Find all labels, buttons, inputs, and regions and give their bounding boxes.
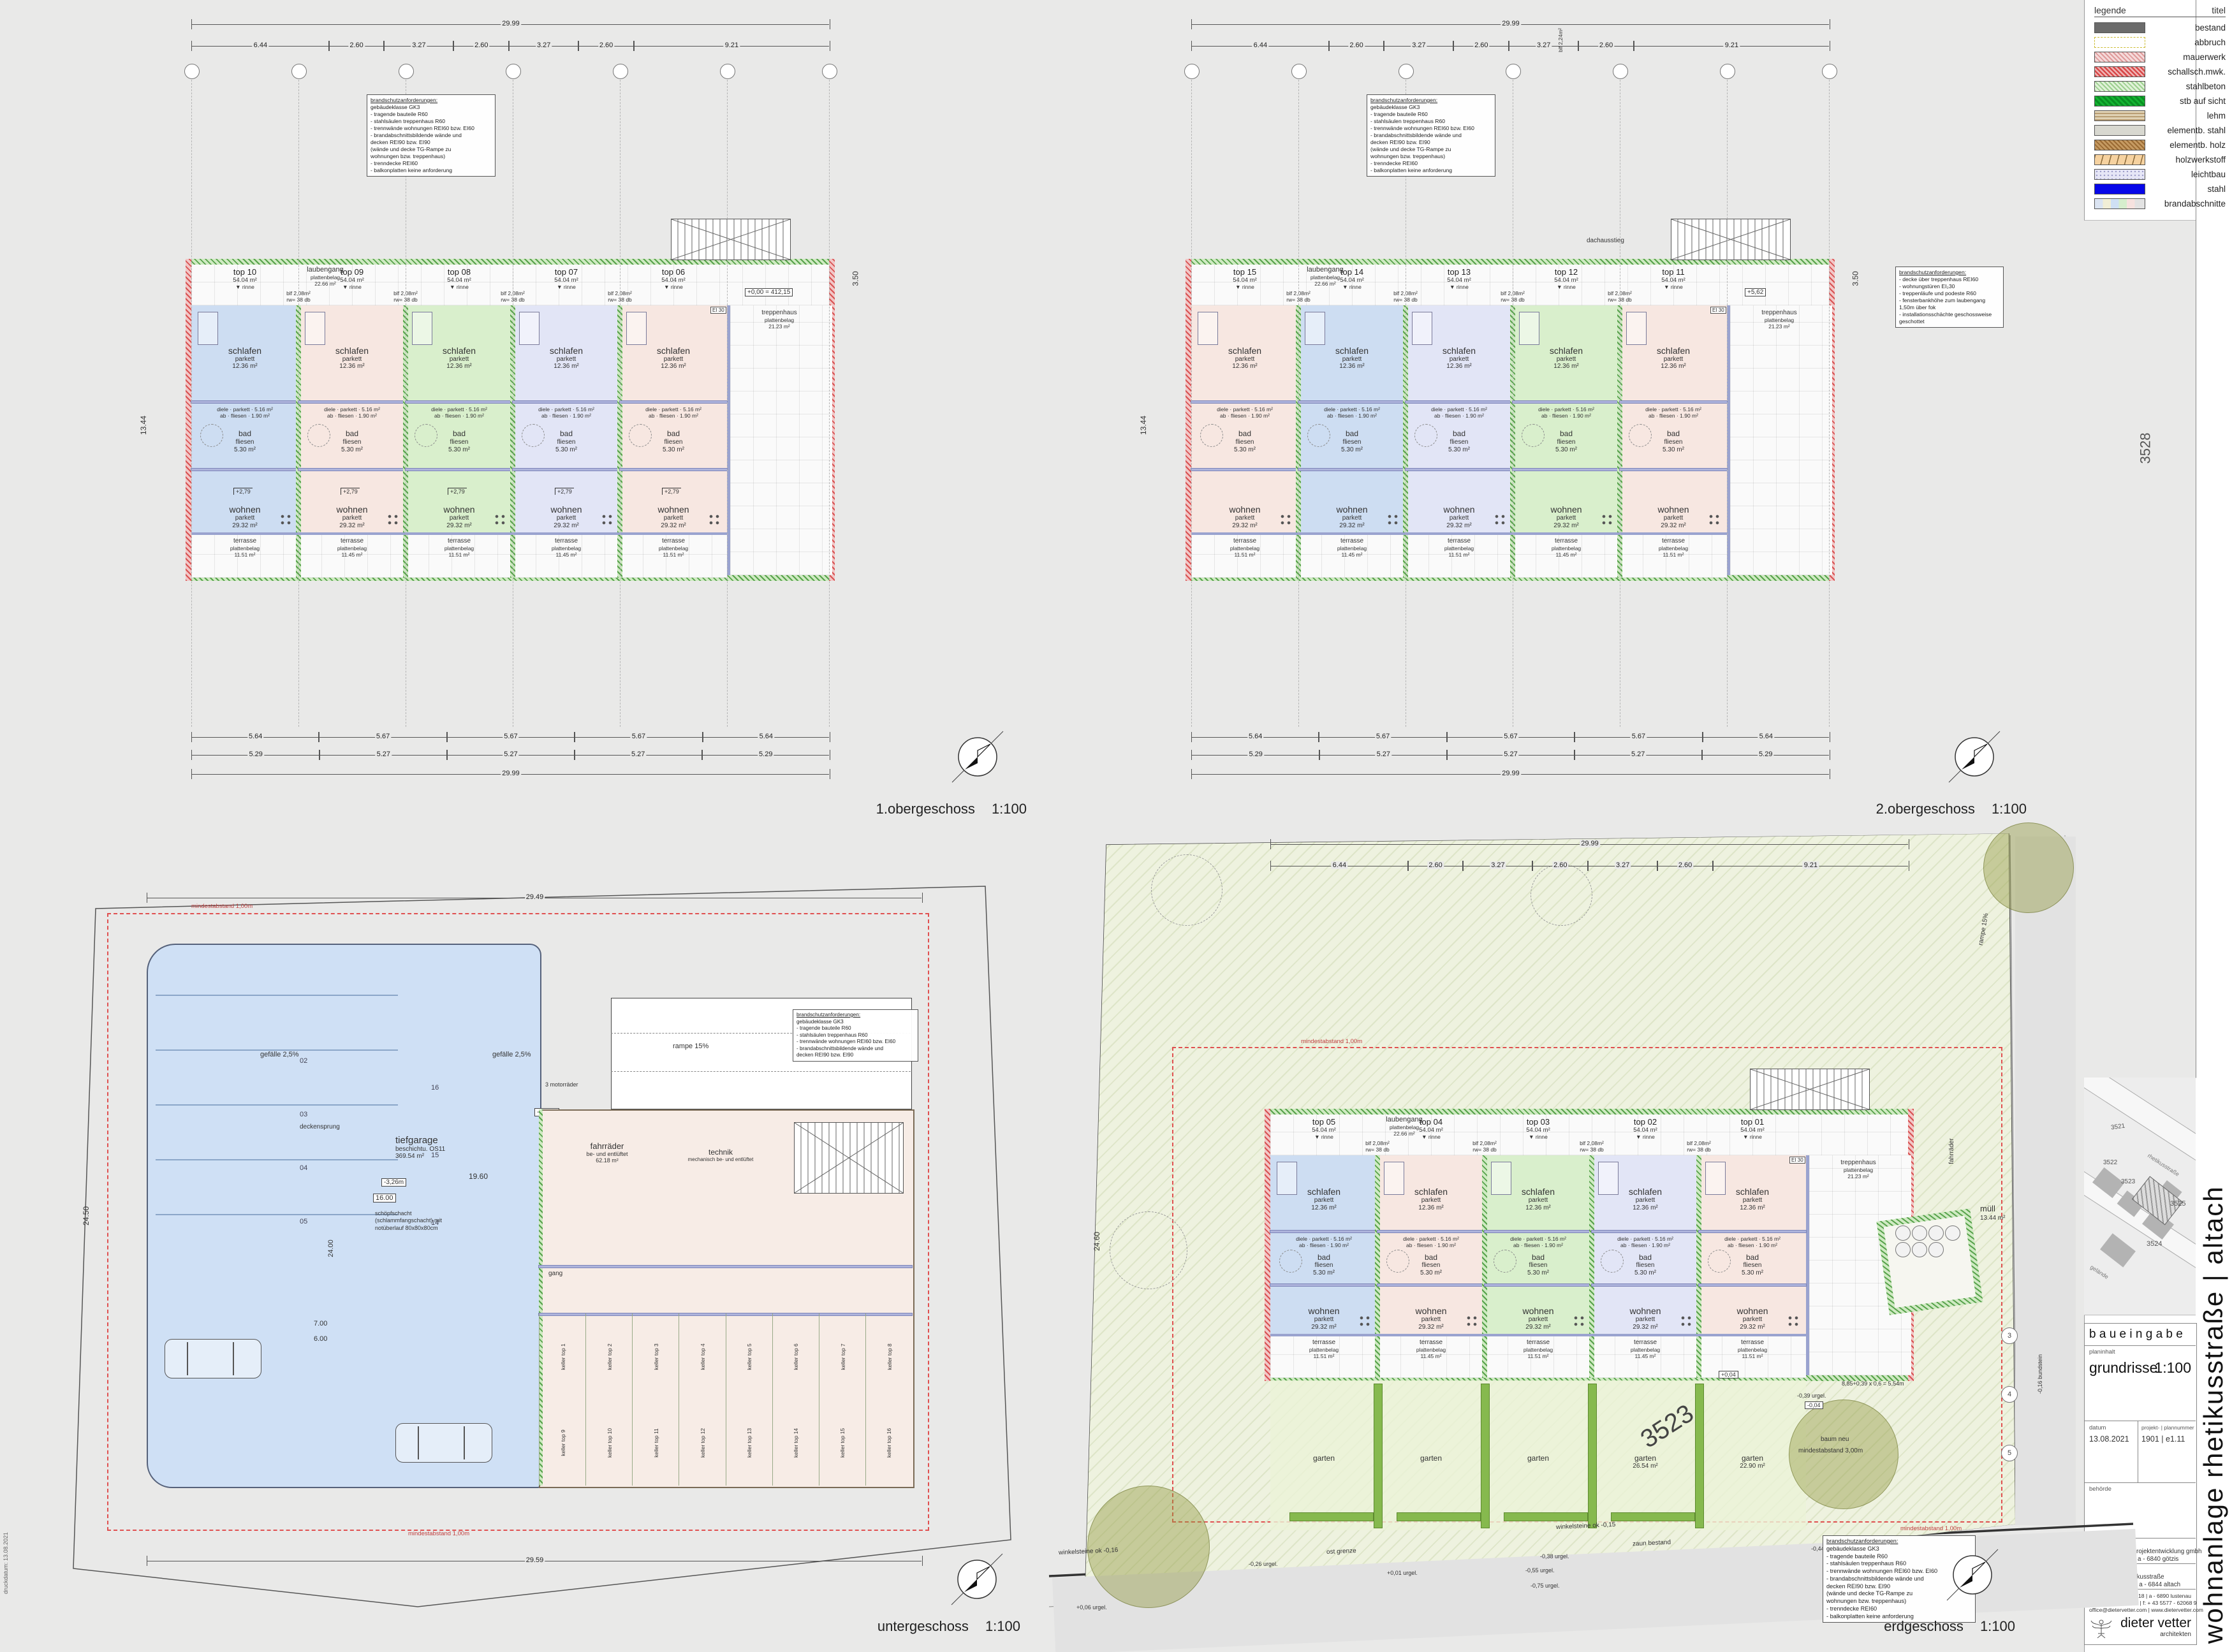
dimension-value: 5.27 (1630, 750, 1646, 758)
room-area: 12.36 m² (1620, 363, 1727, 370)
partition-line (1191, 469, 1298, 471)
room-diele-ab: diele · parkett · 5.16 m²ab · fliesen · … (1270, 1236, 1377, 1248)
room-name: schlafen (513, 346, 620, 356)
partition-line (298, 401, 406, 403)
grid-bubble (822, 64, 837, 79)
building-og2: top 1554.04 m²▼ rinnetop 1454.04 m²▼ rin… (1191, 265, 1829, 575)
kitchen-hob-icon (1573, 1315, 1585, 1327)
room-area: 12.36 m² (620, 363, 727, 370)
dim-7: 7.00 (314, 1320, 327, 1327)
walkway-strip: top 1054.04 m²▼ rinnetop 0954.04 m²▼ rin… (191, 265, 829, 308)
room-diele-ab: diele · parkett · 5.16 m²ab · fliesen · … (1513, 406, 1620, 419)
partition-line (1377, 1284, 1485, 1286)
window-note: blf 2,08m²rw= 38 db (1358, 1140, 1397, 1153)
partition-line (1377, 1231, 1485, 1232)
unit-area: 54.04 m² (1408, 277, 1510, 284)
cellar-cell-label: keller top 5 (746, 1343, 753, 1370)
partition-line (620, 469, 727, 471)
terrace-area: 11.51 m² (620, 552, 727, 558)
fire-note-line: gebäudeklasse GK3 (797, 1019, 914, 1026)
dimension-value: 5.27 (503, 750, 518, 758)
dimension-value: 5.29 (1758, 750, 1773, 758)
dimension-value: 2.60 (348, 41, 364, 49)
dimension-segment: 5.29 (191, 750, 320, 760)
terrace-name: terrasse (1191, 537, 1298, 545)
room-finish: parkett (1270, 1197, 1377, 1204)
terrace-area: 11.51 m² (406, 552, 513, 558)
floor-level: +2,79 (448, 488, 467, 495)
dimension-segment: 9.21 (633, 41, 830, 51)
room-diele-ab: diele · parkett · 5.16 m²ab · fliesen · … (513, 406, 620, 419)
terrace-finish: plattenbelag (1513, 545, 1620, 552)
fire-note-line: - balkonplatten keine anforderung (1370, 167, 1492, 174)
dim-16: 16.00 (373, 1194, 396, 1202)
terrace-label: terrasseplattenbelag11.51 m² (1191, 537, 1298, 558)
room-diele-ab: diele · parkett · 5.16 m²ab · fliesen · … (1191, 406, 1298, 419)
room-diele: diele · parkett · 5.16 m² (406, 406, 513, 413)
fire-note-line: - trenndecke REI60 (1370, 160, 1492, 167)
plan-title-row: untergeschoss1:100 (842, 1618, 1020, 1635)
unit-header: top 0554.04 m²▼ rinne (1273, 1117, 1375, 1140)
room-ab: ab · fliesen · 1.90 m² (1699, 1242, 1806, 1248)
unit-header: top 0254.04 m²▼ rinne (1594, 1117, 1696, 1140)
grid-bubble (613, 64, 628, 79)
room-diele: diele · parkett · 5.16 m² (1298, 406, 1406, 413)
rw-note: rw= 38 db (1573, 1146, 1611, 1153)
garden-label: garten (1270, 1454, 1377, 1463)
unit-stripe: schlafenparkett12.36 m²diele · parkett ·… (1513, 305, 1620, 532)
terrace-name: terrasse (1620, 537, 1727, 545)
grid-line (620, 80, 620, 727)
room-diele-ab: diele · parkett · 5.16 m²ab · fliesen · … (1485, 1236, 1592, 1248)
room-area: 5.30 m² (406, 446, 513, 454)
cellar-cell-label: keller top 11 (653, 1428, 659, 1458)
unit-id: top 01 (1701, 1117, 1803, 1127)
room-finish: parkett (1377, 1197, 1485, 1204)
bath-icon (1708, 1250, 1731, 1273)
dimension-value: 5.67 (375, 733, 391, 740)
dimension-segment: 29.99 (191, 19, 830, 29)
partition-line (1699, 1231, 1806, 1232)
stair-door-tag: EI 30 (1789, 1157, 1805, 1164)
plan-title-row: erdgeschoss1:100 (1837, 1618, 2015, 1635)
terrace-cell: terrasseplattenbelag11.45 m² (1298, 532, 1406, 578)
party-wall-left (186, 259, 191, 581)
bed-icon (1277, 1162, 1297, 1195)
unit-area: 54.04 m² (1273, 1127, 1375, 1134)
unit-id: top 13 (1408, 267, 1510, 277)
room-diele: diele · parkett · 5.16 m² (191, 406, 298, 413)
parking-bays (156, 995, 398, 1269)
fire-note-og2: brandschutzanforderungen:gebäudeklasse G… (1367, 94, 1495, 177)
walkway-drain: ▼ rinne (1408, 284, 1510, 290)
unit-header: top 1054.04 m²▼ rinne (194, 267, 296, 290)
unit-header: top 0154.04 m²▼ rinne (1701, 1117, 1803, 1140)
terrace-finish: plattenbelag (1699, 1347, 1806, 1353)
dimension-value: 5.29 (758, 750, 774, 758)
dimension-segment: 6.44 (191, 41, 330, 51)
grid-line (1620, 80, 1620, 727)
room-ab: ab · fliesen · 1.90 m² (406, 413, 513, 419)
unit-stripe: schlafenparkett12.36 m²diele · parkett ·… (1485, 1155, 1592, 1334)
bath-icon (522, 424, 545, 447)
unit-id: top 03 (1487, 1117, 1589, 1127)
cellar-cell-label: keller top 3 (653, 1343, 659, 1370)
room-name: schlafen (298, 346, 406, 356)
room-finish: parkett (298, 356, 406, 363)
fire-note-line: - treppenläufe und podeste R60 (1899, 290, 2000, 297)
partition-line (1485, 1284, 1592, 1286)
car-windshield (418, 1426, 419, 1459)
dimension-segment: 5.27 (1446, 750, 1575, 760)
kitchen-hob-icon (1680, 1315, 1692, 1327)
terrace-label: terrasseplattenbelag11.45 m² (1513, 537, 1620, 558)
cellar-cell: keller top 9 (539, 1400, 586, 1486)
unit-stripe: schlafenparkett12.36 m²diele · parkett ·… (1377, 1155, 1485, 1334)
terrace-finish: plattenbelag (1620, 545, 1727, 552)
stair-door-tag: EI 30 (1710, 307, 1726, 314)
floor-level: +2,79 (341, 488, 360, 495)
room-finish: parkett (406, 356, 513, 363)
unit-header: top 0354.04 m²▼ rinne (1487, 1117, 1589, 1140)
unit-id: top 12 (1515, 267, 1617, 277)
terrace-finish: plattenbelag (513, 545, 620, 552)
garage-sub: beschichtu. OS11 (395, 1146, 510, 1153)
partition-line (1270, 1284, 1377, 1286)
min-distance-label: mindestabstand 1,00m (408, 1530, 469, 1537)
dimension-segment: 5.67 (1574, 732, 1703, 742)
car-icon (395, 1423, 492, 1463)
room-finish: parkett (1620, 356, 1727, 363)
room-area: 5.30 m² (1620, 446, 1727, 454)
bath-icon (1279, 1250, 1302, 1273)
grid-line (1829, 80, 1830, 727)
fire-note-line: - tragende bauteile R60 (371, 111, 492, 118)
terrace-name: terrasse (1270, 1339, 1377, 1347)
fire-note-line: - trenndecke REI60 (371, 160, 492, 167)
terrace-party-wall (1482, 1336, 1487, 1378)
parking-number: 04 (300, 1164, 307, 1172)
terrace-party-wall (1696, 1336, 1701, 1378)
dimension-value: 9.21 (724, 41, 740, 49)
fire-note-line: - decke über treppenhaus REI60 (1899, 276, 2000, 283)
room-schlafen: schlafenparkett12.36 m² (298, 346, 406, 370)
rw-note: rw= 38 db (1680, 1146, 1718, 1153)
terrace-label: terrasseplattenbelag11.51 m² (1270, 1339, 1377, 1359)
terrace-area: 11.51 m² (1485, 1353, 1592, 1359)
dimension-segment: 9.21 (1712, 861, 1909, 871)
terrace-finish: plattenbelag (406, 545, 513, 552)
cellar-cell: keller top 14 (772, 1400, 819, 1486)
unit-stripe: schlafenparkett12.36 m²diele · parkett ·… (1620, 305, 1727, 532)
room-area: 12.36 m² (1298, 363, 1406, 370)
dimension-segment: 5.29 (701, 750, 830, 760)
cellar-cell: keller top 7 (819, 1313, 866, 1400)
grid-line (727, 80, 728, 727)
terrace-label: terrasseplattenbelag11.51 m² (1406, 537, 1513, 558)
grid-bubble (1184, 64, 1200, 79)
room-diele: diele · parkett · 5.16 m² (513, 406, 620, 413)
cellar-cell: keller top 4 (679, 1313, 726, 1400)
cellar-cell: keller top 2 (585, 1313, 633, 1400)
dimension-segment: 5.27 (319, 750, 448, 760)
room-area: 5.30 m² (513, 446, 620, 454)
kitchen-hob-icon (386, 513, 399, 526)
room-schlafen: schlafenparkett12.36 m² (406, 346, 513, 370)
bottom-segment-dims: 5.645.675.675.675.64 (1191, 732, 1829, 742)
room-area: 12.36 m² (406, 363, 513, 370)
dimension-value: 5.27 (1502, 750, 1518, 758)
unit-id: top 11 (1622, 267, 1724, 277)
plan-scale: 1:100 (1980, 1618, 2015, 1634)
tree-existing (1110, 1211, 1187, 1289)
terrace-party-wall (1375, 1336, 1380, 1378)
unit-stripe: schlafenparkett12.36 m²diele · parkett ·… (406, 305, 513, 532)
plan-title-row: 1.obergeschoss1:100 (848, 801, 1027, 817)
room-diele: diele · parkett · 5.16 m² (1191, 406, 1298, 413)
parking-number: 03 (300, 1111, 307, 1118)
partition-line (1513, 401, 1620, 403)
dimension-value: 3.27 (1490, 861, 1506, 869)
room-name: schlafen (1406, 346, 1513, 356)
fire-note-line: decken REI90 bzw. EI90 (797, 1052, 914, 1059)
top-segment-dims: 6.442.603.272.603.272.609.21 (191, 41, 829, 51)
dimension-segment: 3.27 (1508, 41, 1579, 51)
kitchen-hob-icon (1787, 1315, 1800, 1327)
dimension-value: 6.44 (1332, 861, 1347, 869)
terrace-cell: terrasseplattenbelag11.51 m² (1406, 532, 1513, 578)
room-diele: diele · parkett · 5.16 m² (1406, 406, 1513, 413)
kitchen-hob-icon (708, 513, 721, 526)
room-ab: ab · fliesen · 1.90 m² (298, 413, 406, 419)
top-total-dim: 29.99 (191, 19, 829, 29)
garden-label: garten26.54 m² (1592, 1454, 1699, 1470)
fire-note-line: - tragende bauteile R60 (1370, 111, 1492, 118)
grid-bubble (184, 64, 200, 79)
cellar-cell-label: keller top 8 (886, 1343, 892, 1370)
room-schlafen: schlafenparkett12.36 m² (1191, 346, 1298, 370)
unit-header: top 0754.04 m²▼ rinne (515, 267, 617, 290)
dimension-value: 2.60 (1598, 41, 1614, 49)
walkway-drain: ▼ rinne (1487, 1134, 1589, 1140)
grid-bubble-numbered: 4 (2001, 1386, 2018, 1403)
dimension-segment: 29.49 (147, 893, 923, 903)
room-diele: diele · parkett · 5.16 m² (1513, 406, 1620, 413)
ug-stair (794, 1122, 904, 1194)
right-dim: 3.50 (851, 271, 860, 286)
fahrraeder-label: fahrräder (1948, 1138, 1955, 1164)
cellar-cell-label: keller top 16 (886, 1428, 892, 1457)
terrace-name: terrasse (1699, 1339, 1806, 1347)
walkway-name: laubengang (1366, 1116, 1443, 1124)
bed-icon (1198, 312, 1218, 345)
slope-label: gefälle 2,5% (260, 1051, 299, 1058)
partition-line (1592, 1284, 1699, 1286)
cellar-cell-label: keller top 13 (746, 1428, 753, 1457)
dimension-segment: 2.60 (1532, 861, 1589, 871)
room-area: 5.30 m² (1298, 446, 1406, 454)
room-ab: ab · fliesen · 1.90 m² (191, 413, 298, 419)
unit-header: top 1154.04 m²▼ rinne (1622, 267, 1724, 290)
stair-area: 21.23 m² (733, 323, 826, 330)
dimension-value: 5.67 (1502, 733, 1518, 740)
right-dim: 3.50 (1851, 271, 1860, 286)
terrace-name: terrasse (1513, 537, 1620, 545)
dimension-value: 9.21 (1803, 861, 1819, 869)
hedge (1289, 1512, 1374, 1521)
muell-area: 13.44 m² (1980, 1215, 2005, 1222)
grid-line (1406, 80, 1406, 727)
street-east (2015, 837, 2076, 1525)
grid-bubble (399, 64, 414, 79)
room-diele: diele · parkett · 5.16 m² (1270, 1236, 1377, 1242)
partition-line (1513, 469, 1620, 471)
terrace-label: terrasseplattenbelag11.45 m² (513, 537, 620, 558)
bath-icon (1522, 424, 1545, 447)
dimension-segment: 3.27 (1462, 861, 1533, 871)
terrace-area: 11.51 m² (191, 552, 298, 558)
dimension-segment: 2.60 (1657, 861, 1714, 871)
top-total-dim: 29.99 (1191, 19, 1829, 29)
bath-icon (1629, 424, 1652, 447)
terrace-area: 11.51 m² (1191, 552, 1298, 558)
garden-name: garten (1270, 1454, 1377, 1463)
room-diele: diele · parkett · 5.16 m² (1592, 1236, 1699, 1242)
kitchen-hob-icon (1601, 513, 1613, 526)
blf-note: blf 2,08m² (1680, 1140, 1718, 1146)
room-schlafen: schlafenparkett12.36 m² (1406, 346, 1513, 370)
dimension-value: 5.29 (1248, 750, 1264, 758)
plan-scale: 1:100 (992, 801, 1027, 817)
level-box: +0,00 = 412,15 (745, 288, 793, 296)
partition-line (1406, 401, 1513, 403)
stair-name: treppenhaus (1812, 1159, 1905, 1167)
bed-icon (1598, 1162, 1619, 1195)
dimension-segment: 2.60 (1328, 41, 1385, 51)
terrace-cell: terrasseplattenbelag11.51 m² (1191, 532, 1298, 578)
terrace-finish: plattenbelag (1592, 1347, 1699, 1353)
dimension-segment: 29.99 (1191, 769, 1830, 779)
fahrraeder-room: fahrräderbe- und entlüftet62.18 m² (550, 1141, 664, 1164)
room-sub: be- und entlüftet (550, 1151, 664, 1157)
dimension-value: 5.29 (248, 750, 264, 758)
tree-new-label: baum neu (1821, 1436, 1849, 1443)
terrace-cell: terrasseplattenbelag11.51 m² (1270, 1334, 1377, 1378)
fire-note-line: gebäudeklasse GK3 (371, 104, 492, 111)
stair-finish: plattenbelag (1733, 317, 1826, 323)
building-og1: top 1054.04 m²▼ rinnetop 0954.04 m²▼ rin… (191, 265, 829, 575)
floor-level: +2,79 (233, 488, 253, 495)
dimension-segment: 2.60 (328, 41, 385, 51)
dimension-segment: 2.60 (1578, 41, 1634, 51)
unit-area: 54.04 m² (622, 277, 724, 284)
dimension-segment: 29.59 (147, 1556, 923, 1566)
room-diele-ab: diele · parkett · 5.16 m²ab · fliesen · … (1592, 1236, 1699, 1248)
dimension-value: 2.60 (473, 41, 489, 49)
unit-stripe: schlafenparkett12.36 m²diele · parkett ·… (298, 305, 406, 532)
partition-line (1191, 401, 1298, 403)
bath-icon (1601, 1250, 1624, 1273)
unit-header: top 1354.04 m²▼ rinne (1408, 267, 1510, 290)
terrace-area: 11.45 m² (1298, 552, 1406, 558)
partition-line (298, 469, 406, 471)
blf-note: blf 2,08m² (1358, 1140, 1397, 1146)
rw-note: rw= 38 db (1358, 1146, 1397, 1153)
walkway-strip: top 1554.04 m²▼ rinnetop 1454.04 m²▼ rin… (1191, 265, 1829, 308)
partition-line (406, 401, 513, 403)
spot-level-urgel: -0,55 urgel. (1525, 1567, 1555, 1574)
unit-stripe: schlafenparkett12.36 m²diele · parkett ·… (1699, 1155, 1806, 1334)
eg-top-dim: 29.99 (1270, 839, 1908, 849)
cellar-cell: keller top 1 (539, 1313, 586, 1400)
fire-note-line: wohnungen bzw. treppenhaus) (371, 153, 492, 160)
unit-header: top 1554.04 m²▼ rinne (1194, 267, 1296, 290)
floor-level: +2,79 (662, 488, 681, 495)
stair-area: 21.23 m² (1812, 1173, 1905, 1180)
bath-icon (1307, 424, 1330, 447)
dimension-value: 5.67 (1375, 733, 1391, 740)
ramp-line (611, 1071, 911, 1072)
grid-bubble-numbered: 3 (2001, 1327, 2018, 1344)
stair-label: treppenhausplattenbelag21.23 m² (1812, 1159, 1905, 1180)
room-schlafen: schlafenparkett12.36 m² (1513, 346, 1620, 370)
min-distance-label: mindestabstand 1,00m (1900, 1525, 1962, 1532)
room-ab: ab · fliesen · 1.90 m² (620, 413, 727, 419)
cellar-cell-label: keller top 15 (839, 1428, 846, 1457)
terrace-finish: plattenbelag (191, 545, 298, 552)
dimension-value: 5.67 (631, 733, 647, 740)
unit-area: 54.04 m² (1515, 277, 1617, 284)
dimension-value: 5.27 (630, 750, 646, 758)
party-wall-left (1265, 1109, 1270, 1381)
cellar-cell: keller top 10 (585, 1400, 633, 1486)
tree-existing (1531, 864, 1592, 926)
terrace-area: 11.45 m² (1592, 1353, 1699, 1359)
terrace-finish: plattenbelag (1298, 545, 1406, 552)
dimension-segment: 6.44 (1191, 41, 1330, 51)
dimension-segment: 5.64 (191, 732, 319, 742)
room-finish: parkett (1191, 356, 1298, 363)
unit-area: 54.04 m² (515, 277, 617, 284)
tree-distance-label: mindestabstand 3,00m (1798, 1447, 1863, 1454)
dimension-segment: 5.27 (574, 750, 703, 760)
room-schlafen: schlafenparkett12.36 m² (513, 346, 620, 370)
partition-line (1406, 469, 1513, 471)
room-ab: ab · fliesen · 1.90 m² (1298, 413, 1406, 419)
room-area: 12.36 m² (513, 363, 620, 370)
room-finish: parkett (1699, 1197, 1806, 1204)
room-diele: diele · parkett · 5.16 m² (1377, 1236, 1485, 1242)
dimension-value: 5.64 (1758, 733, 1774, 740)
room-name: schlafen (1513, 346, 1620, 356)
cellar-cell-label: keller top 4 (700, 1343, 706, 1370)
terrace-label: terrasseplattenbelag11.51 m² (620, 537, 727, 558)
room-diele-ab: diele · parkett · 5.16 m²ab · fliesen · … (1406, 406, 1513, 419)
terrace-cell: terrasseplattenbelag11.45 m² (1513, 532, 1620, 578)
stair-area: 21.23 m² (1733, 323, 1826, 330)
fire-note-og1: brandschutzanforderungen:gebäudeklasse G… (367, 94, 496, 177)
bed-icon (1705, 1162, 1726, 1195)
grid-line (191, 80, 192, 727)
room-ab: ab · fliesen · 1.90 m² (1406, 413, 1513, 419)
room-area: 5.30 m² (1191, 446, 1298, 454)
garage-level: -3,26m (381, 1178, 406, 1187)
grid-bubble (1613, 64, 1628, 79)
room-schlafen: schlafenparkett12.36 m² (1620, 346, 1727, 370)
grid-bubble (1291, 64, 1307, 79)
muell-bin-icon (1928, 1242, 1944, 1257)
terrace-area: 11.51 m² (1270, 1353, 1377, 1359)
